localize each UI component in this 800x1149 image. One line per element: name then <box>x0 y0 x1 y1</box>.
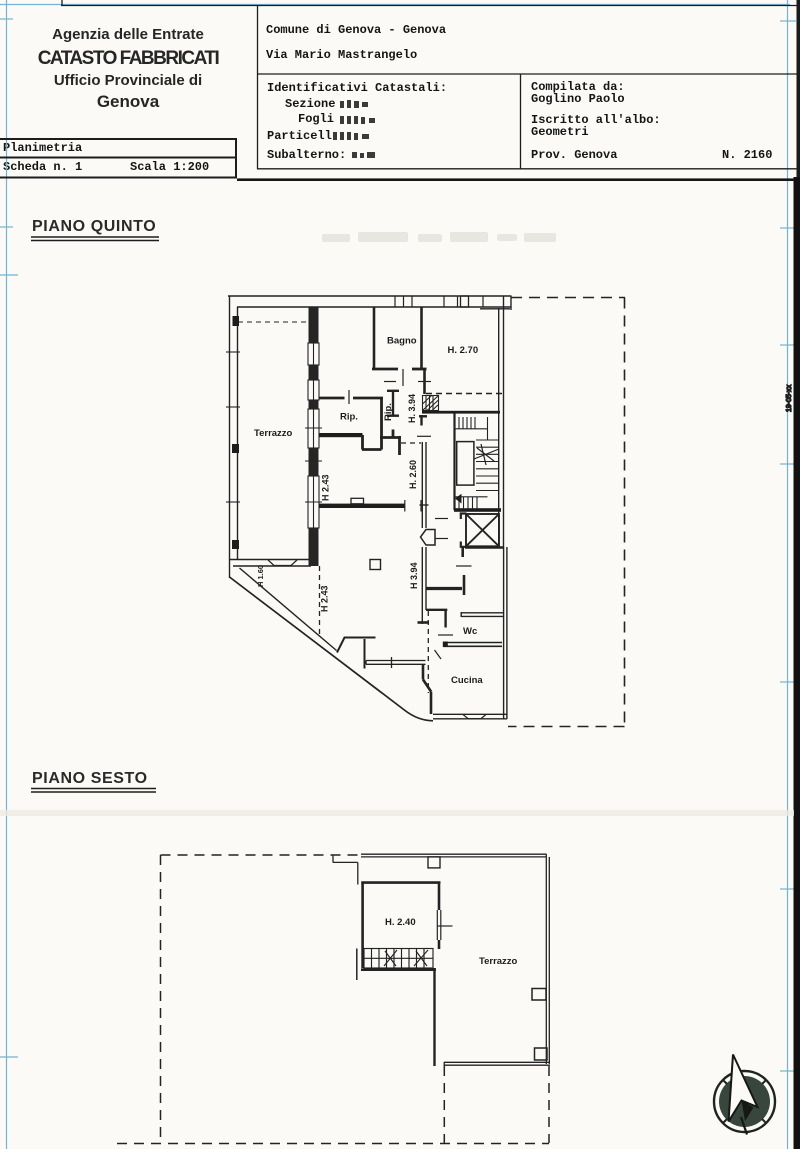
svg-text:H 3.94: H 3.94 <box>409 562 419 589</box>
svg-text:Terrazzo: Terrazzo <box>254 428 293 439</box>
svg-text:Bagno: Bagno <box>387 336 417 347</box>
svg-text:Cucina: Cucina <box>451 675 483 686</box>
svg-text:19-05-xx: 19-05-xx <box>786 384 793 412</box>
svg-text:H. 2.40: H. 2.40 <box>385 917 416 928</box>
svg-text:H 2.43: H 2.43 <box>320 585 330 612</box>
svg-text:H 1.60: H 1.60 <box>256 565 265 587</box>
svg-text:H 2.43: H 2.43 <box>321 474 331 501</box>
svg-text:Rip.: Rip. <box>383 403 394 421</box>
svg-text:Rip.: Rip. <box>340 412 358 423</box>
svg-text:H. 3.94: H. 3.94 <box>407 394 417 423</box>
svg-text:Terrazzo: Terrazzo <box>479 956 518 967</box>
svg-text:H. 2.60: H. 2.60 <box>408 460 418 489</box>
svg-text:H. 2.70: H. 2.70 <box>448 345 479 356</box>
svg-text:Wc: Wc <box>463 626 477 637</box>
